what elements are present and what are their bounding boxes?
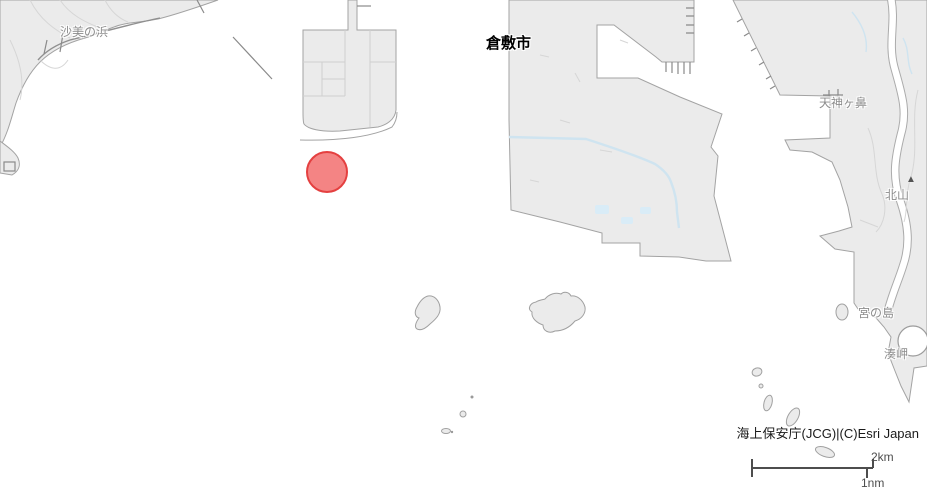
map-attribution: 海上保安庁(JCG)|(C)Esri Japan	[736, 423, 919, 442]
red-circle-marker[interactable]	[306, 151, 348, 193]
scale-km-label: 2km	[871, 450, 894, 464]
land-east	[733, 0, 927, 402]
scale-nm-label: 1nm	[861, 476, 884, 490]
land-northwest	[0, 0, 272, 175]
basemap-svg	[0, 0, 927, 492]
land-central	[509, 0, 731, 261]
scale-bar: 2km 1nm	[744, 449, 914, 491]
map-canvas[interactable]: 倉敷市 沙美の浜 天神ヶ鼻 ▲ 北山 宮の島 湊岬 海上保安庁(JCG)|(C)…	[0, 0, 927, 492]
land-port-block	[300, 0, 397, 140]
